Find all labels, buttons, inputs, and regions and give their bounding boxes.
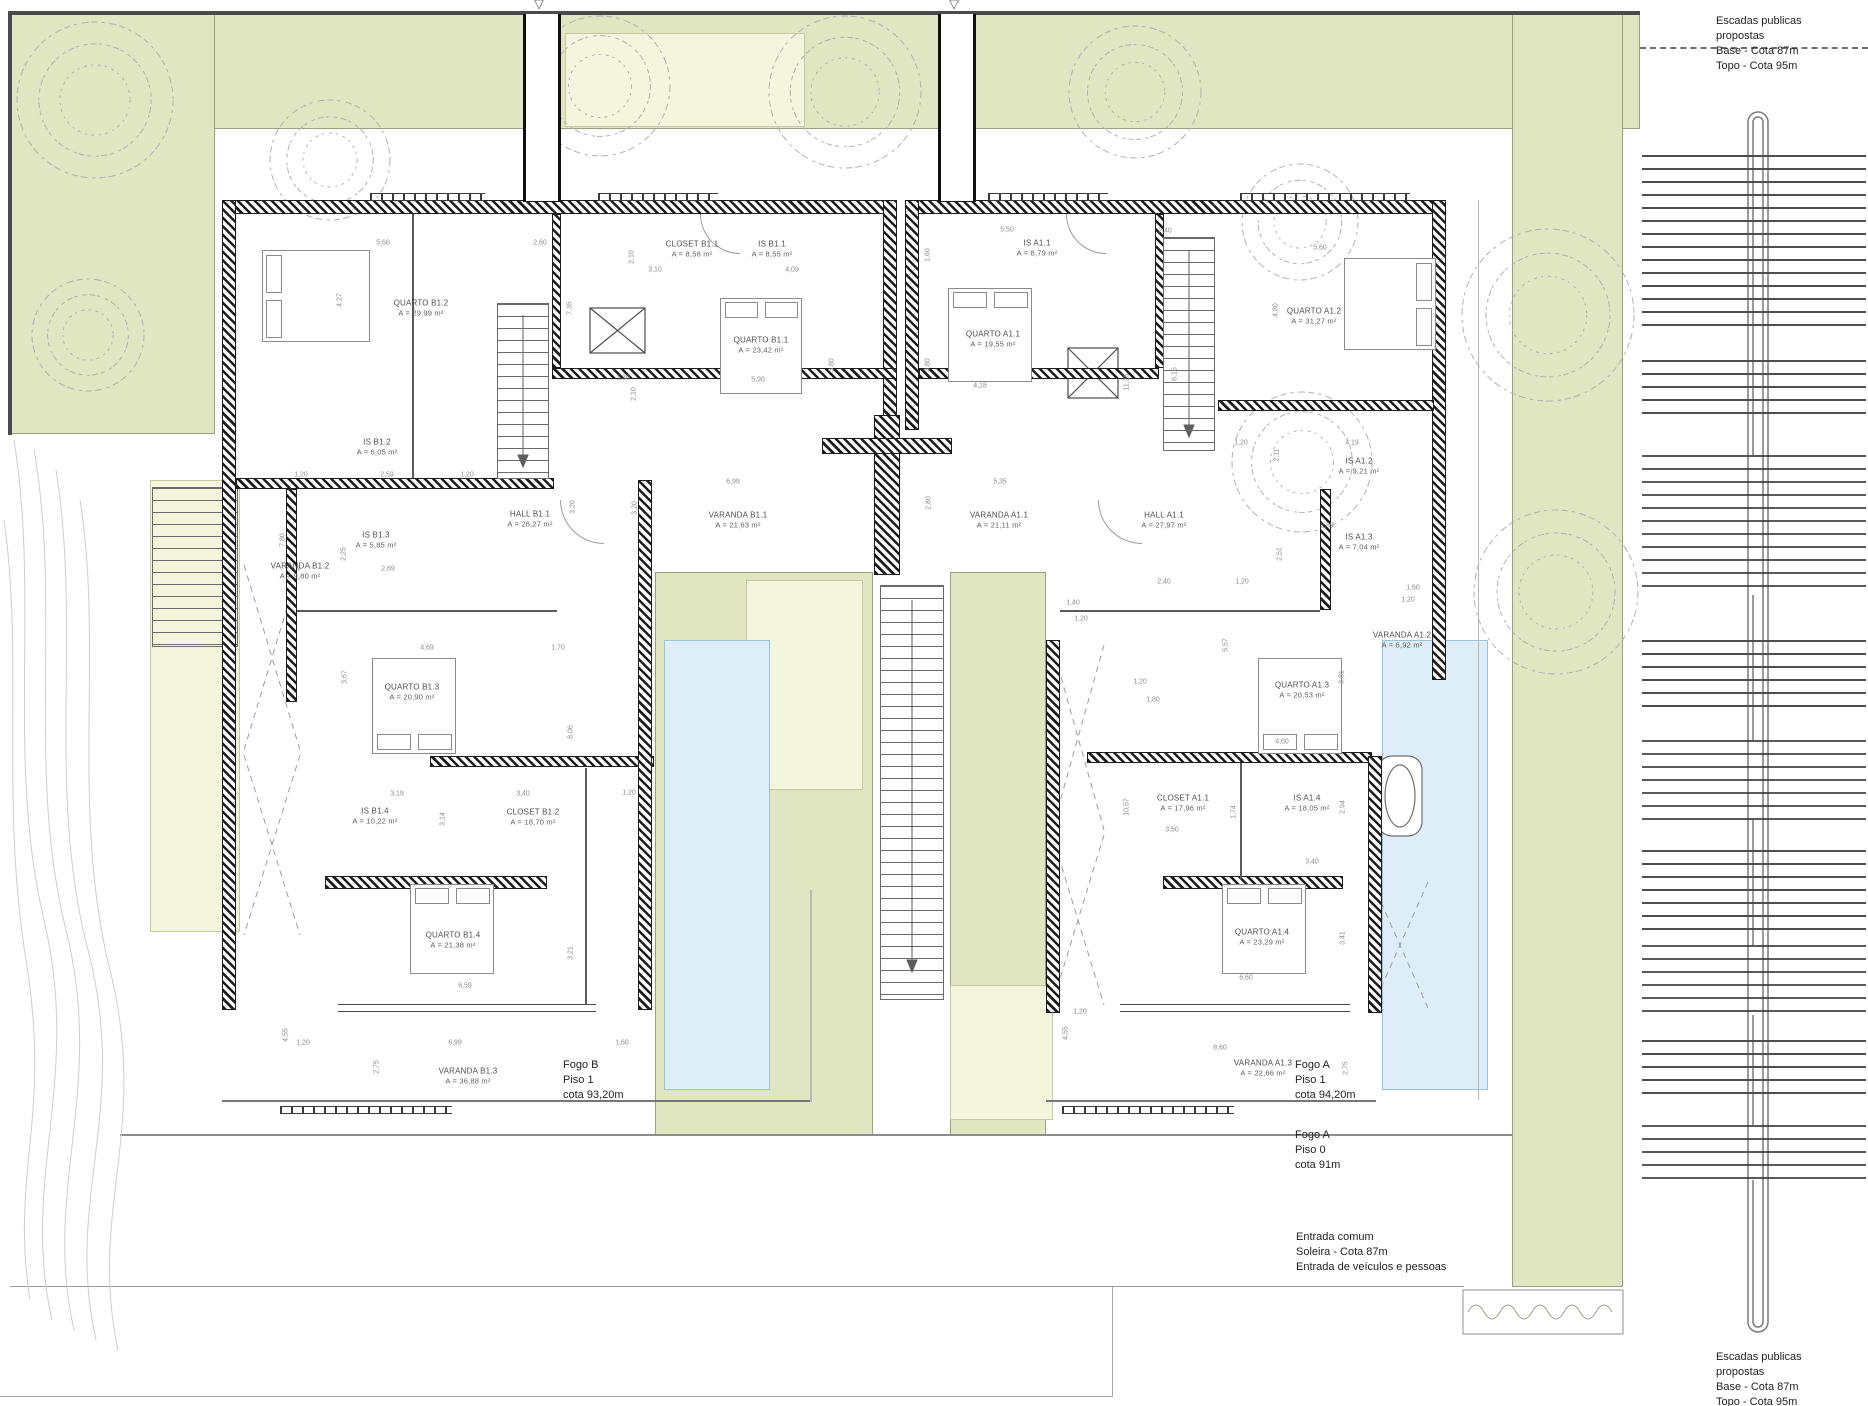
dimension-text: 4,55 [1063,1026,1070,1040]
window-a-terrace [1062,1106,1234,1114]
dimension-text: 1,60 [615,1040,629,1047]
room-label: QUARTO A1.2A = 31,27 m² [1287,306,1341,325]
pillow [456,888,490,904]
dimension-text: 4,55 [283,1028,290,1042]
dimension-text: 1,20 [1234,440,1248,447]
dimension-text: 3,50 [1165,827,1179,834]
dimension-text: 1,20 [1073,1009,1087,1016]
room-label: HALL B1.1A = 26,27 m² [507,509,552,528]
wall-b-bath-vertical [286,489,297,702]
dimension-text: 1,30 [616,375,630,382]
dimension-text: 3,81 [1339,670,1346,684]
dimension-text: 1,60 [925,248,932,262]
room-label: QUARTO A1.4A = 23,29 m² [1235,927,1289,946]
frame-line-bottom [0,1396,1112,1397]
dimension-text: 4,69 [420,645,434,652]
room-label: VARANDA A1.1A = 21,11 m² [970,510,1028,529]
dimension-text: 1,20 [1235,579,1249,586]
terrace-b-edge [222,1100,812,1102]
dimension-text: 1,20 [460,472,474,479]
room-label: CLOSET B1.2A = 18,70 m² [507,807,560,826]
dimension-text: 2,10 [629,250,636,264]
dimension-text: 1,20 [1133,679,1147,686]
room-label: VARANDA B1.1A = 21,63 m² [709,510,768,529]
public-stairs-band-2 [1642,360,1866,420]
stair-house-a [1163,237,1215,451]
pillow [415,888,449,904]
fogo-a-piso-0: Fogo APiso 0cota 91m [1295,1128,1340,1173]
wall-a-wardrobe-band [1218,400,1434,411]
dimension-text: 4,18 [973,383,987,390]
bed-icon [262,250,370,342]
dimension-text: 5,35 [993,479,1007,486]
site-line-bottom [10,1286,1464,1287]
shaft-right [938,14,976,202]
dimension-text: 1,20 [1074,616,1088,623]
dimension-text: 3,19 [390,791,404,798]
public-stairs-band-1 [1642,155,1866,335]
pillow [418,734,452,750]
pool-fogo-a [1382,640,1488,1090]
window-b-north-2 [598,193,718,201]
wall-b-closet2-top [430,756,654,767]
dimension-text: 1,20 [1401,597,1415,604]
dimension-text: 4,19 [1345,440,1359,447]
site-boundary-top [10,11,1640,15]
dimension-text: 3,80 [829,358,836,372]
dimension-text: 6,99 [448,1040,462,1047]
floor-plan-canvas: ▽ ▽ QUARTO B1.2A = 29,99 m²CLOSET B1.1A … [0,0,1868,1406]
dimension-text: 1,20 [294,472,308,479]
lawn-center-bottom-patch [950,985,1053,1120]
wall-a-wing-left [1046,640,1060,1013]
wall-b-top [222,200,897,214]
pillow [1268,888,1302,904]
room-label: IS B1.1A = 8,55 m² [752,239,793,258]
wall-b-partition-3 [297,610,557,612]
public-stairs-band-8 [1642,1040,1866,1100]
stairs-note-top-right: Escadas publicaspropostasBase - Cota 87m… [1716,14,1802,73]
dimension-text: 7,35 [567,301,574,315]
window-a-north-1 [988,193,1108,201]
fogo-a-piso-1: Fogo APiso 1cota 94,20m [1295,1058,1356,1103]
pool-fogo-b [664,640,770,1090]
dimension-text: 4,09 [785,267,799,274]
dimension-text: 2,75 [374,1060,381,1074]
pillow [994,292,1028,308]
lawn-top-center [565,33,805,127]
room-label: HALL A1.1A = 27,97 m² [1141,510,1186,529]
wall-b-left [222,200,236,1010]
pillow [377,734,411,750]
tree-icon [1271,431,1334,494]
pillow [765,302,798,318]
room-label: QUARTO B1.1A = 23,42 m² [734,335,789,354]
dimension-text: 3,20 [570,500,577,514]
dimension-text: 2,60 [533,240,547,247]
shaft-left [523,14,561,202]
dimension-text: 3,40 [1305,859,1319,866]
wall-a-left-upper [905,200,919,430]
wall-b-right-upper [883,200,897,430]
pillow [1304,734,1338,750]
pillow [725,302,758,318]
tree-icon [1252,412,1353,513]
dimension-text: 2,89 [1320,523,1334,530]
dimension-text: 3,20 [632,501,639,515]
dimension-text: 3,10 [648,267,662,274]
room-label: VARANDA A1.2A = 6,92 m² [1373,630,1431,649]
dimension-text: 2,51 [1277,547,1284,561]
wall-b-partition-2 [585,768,587,1004]
terrace-b-right-edge [810,890,812,1102]
stair-house-b [497,303,549,479]
tree-icon [303,133,357,187]
garden-left-column [10,14,215,434]
room-label: IS B1.3A = 5,85 m² [356,530,397,549]
dimension-text: 1,20 [296,1040,310,1047]
pillow [1416,308,1432,346]
terrain-contours [4,440,124,1350]
pillow [1227,888,1261,904]
room-label: IS A1.2A = 9,21 m² [1339,456,1380,475]
entrada-comum: Entrada comumSoleira - Cota 87mEntrada d… [1296,1230,1446,1275]
wall-b-under-quarto12 [236,478,554,489]
dimension-text: 4,27 [337,293,344,307]
gap-path-line [1478,200,1479,1100]
dimension-text: 6,99 [726,479,740,486]
wall-a-partition-2 [1060,610,1320,612]
elevator-shaft-b [590,308,645,353]
dimension-text: 2,59 [380,472,394,479]
dimension-text: 3,21 [568,946,575,960]
dimension-text: 1,40 [1066,600,1080,607]
room-label: IS A1.4A = 18,05 m² [1284,793,1329,812]
public-stairs-band-3 [1642,455,1866,595]
dimension-text: 1,60 [1406,585,1420,592]
dimension-text: 5,50 [1000,227,1014,234]
dimension-text: 5,90 [751,377,765,384]
party-wall-flange [822,438,952,454]
room-label: VARANDA B1.3A = 36,88 m² [439,1066,498,1085]
bed-icon [372,658,456,754]
dimension-text: 6,15 [1172,367,1179,381]
dimension-text: 8,06 [568,725,575,739]
tree-icon [1242,164,1358,280]
room-label: CLOSET B1.1A = 8,56 m² [666,239,719,258]
dimension-text: 2,40 [1158,228,1172,235]
stairs-note-bottom-right: Escadas publicaspropostasBase - Cota 87m… [1716,1350,1802,1406]
dimension-text: 11,25 [1124,374,1131,391]
room-label: IS A1.3A = 7,04 m² [1339,532,1380,551]
dimension-text: 6,59 [458,983,472,990]
door-arc-hall-b [560,500,604,544]
room-label: QUARTO B1.4A = 21,38 m² [426,930,481,949]
room-label: VARANDA A1.3A = 22,66 m² [1234,1058,1292,1077]
bed-icon [1258,658,1342,754]
door-arc-hall-a [1098,500,1142,544]
wall-a-right-lower [1368,756,1382,1013]
door-arc-quarto-a11 [1066,214,1106,254]
public-stairs-band-7 [1642,945,1866,1015]
hedge [1463,1290,1623,1334]
dimension-text: 5,57 [1223,638,1230,652]
garden-right-strip [1512,14,1623,1287]
dimension-text: 1,70 [551,645,565,652]
garden-top-band [10,14,1640,129]
dimension-text: 5,60 [376,240,390,247]
pillow [953,292,987,308]
wall-b-wing-right [638,480,652,1010]
public-stairs-band-9 [1642,1125,1866,1180]
dimension-text: 4,80 [1273,303,1280,317]
dimension-text: 5,60 [1313,245,1327,252]
room-label: QUARTO A1.1A = 19,55 m² [966,329,1020,348]
dimension-text: 10,57 [1124,798,1131,816]
room-label: IS B1.4A = 10,22 m² [352,806,397,825]
window-a-north-2 [1240,193,1410,201]
window-b-north-1 [370,193,485,201]
dimension-text: 3,14 [440,812,447,826]
site-boundary-left [8,11,12,435]
wall-a-bath-vertical [1320,489,1331,610]
bed-icon [410,884,494,974]
wall-a-partition-1 [1240,763,1242,879]
dimension-text: 2,11 [1274,448,1281,461]
tree-icon [287,117,373,203]
dimension-text: 3,67 [342,670,349,684]
room-label: QUARTO B1.3A = 20,90 m² [385,682,440,701]
dimension-text: 3,41 [1340,931,1347,945]
dimension-text: 3,80 [925,358,932,372]
wall-a-top [905,200,1446,214]
bed-icon [1344,258,1436,350]
pillow [266,255,282,293]
dimension-text: 1,74 [1231,805,1238,819]
dimension-text: 1,20 [622,790,636,797]
dimension-text: 8,60 [1213,1045,1227,1052]
room-label: CLOSET A1.1A = 17,96 m² [1157,793,1209,812]
exterior-stair-center [880,585,944,1000]
room-label: VARANDA B1.2A = 9,80 m² [271,561,330,580]
room-label: IS A1.1A = 8,79 m² [1017,238,1058,257]
wall-b-partition-1 [412,214,414,478]
north-marker-right: ▽ [949,0,959,12]
wall-b-divider-top [552,214,561,368]
room-label: QUARTO B1.2A = 29,99 m² [394,298,449,317]
room-label: IS B1.2A = 6,05 m² [357,437,398,456]
dimension-text: 2,40 [1157,579,1171,586]
dimension-text: 2,80 [926,496,933,510]
pillow [266,300,282,338]
public-stairs-band-6 [1642,850,1866,930]
north-marker-left: ▽ [534,0,544,12]
glazing-b-south [338,1004,596,1012]
public-stairs-band-5 [1642,740,1866,820]
pillow [1416,263,1432,301]
dimension-text: 6,60 [1239,975,1253,982]
dimension-text: 2,69 [381,566,395,573]
public-stairs-band-4 [1642,640,1866,710]
dimension-text: 2,10 [631,387,638,401]
fogo-b-piso-1: Fogo BPiso 1cota 93,20m [563,1058,624,1103]
dimension-text: 2,25 [341,547,348,561]
dimension-text: 3,40 [516,791,530,798]
window-b-terrace [280,1106,452,1114]
dimension-text: 1,80 [1146,697,1160,704]
dimension-text: 2,94 [1340,800,1347,814]
glazing-a-south [1120,1004,1350,1012]
driveway-line-vertical [1112,1287,1113,1397]
dimension-text: 4,60 [1275,739,1289,746]
dimension-text: 7,80 [280,533,287,547]
room-label: QUARTO A1.3A = 20,53 m² [1275,680,1329,699]
